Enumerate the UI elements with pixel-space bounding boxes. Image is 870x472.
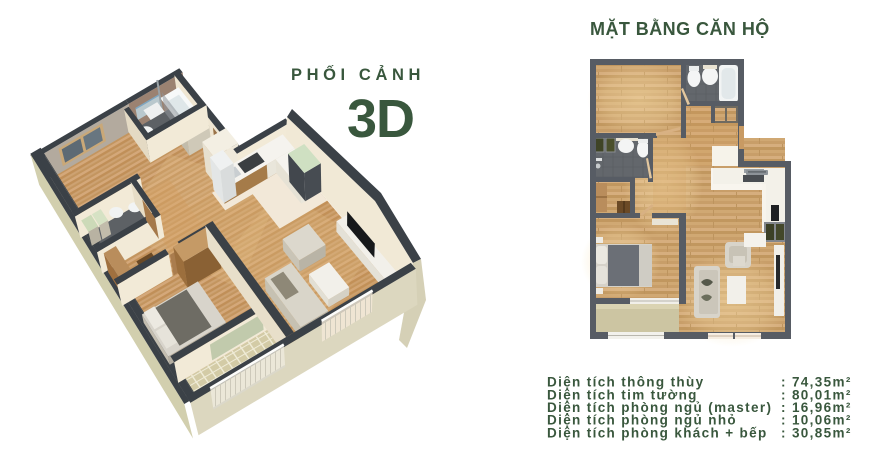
svg-text:: 30,85m²: : 30,85m² xyxy=(781,425,852,440)
svg-text:MẶT BẰNG CĂN HỘ: MẶT BẰNG CĂN HỘ xyxy=(590,18,770,39)
svg-text:Diện tích phòng khách + bếp: Diện tích phòng khách + bếp xyxy=(547,425,768,440)
svg-text:3D: 3D xyxy=(347,89,414,149)
svg-text:PHỐI CẢNH: PHỐI CẢNH xyxy=(291,64,425,84)
